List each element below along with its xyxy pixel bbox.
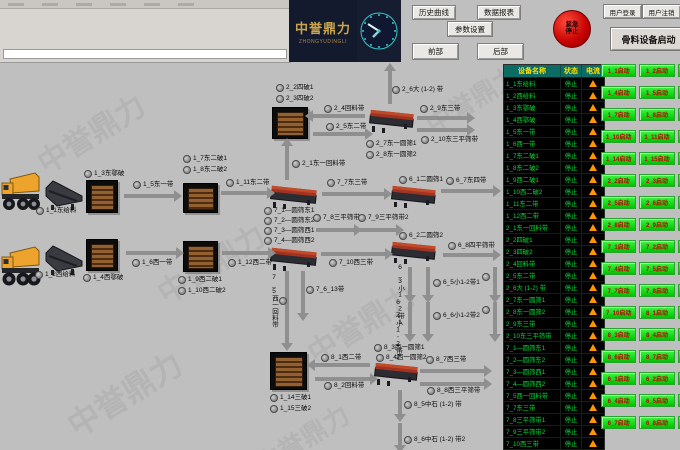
diagram-label: 2_8东一圆筛2 <box>366 151 416 159</box>
status-badge: 停止 <box>561 270 582 281</box>
diagram-label: 1_3东鄂破 <box>84 170 124 178</box>
diagram-label: 2_1东一回料带 <box>292 160 345 168</box>
start-button[interactable]: 1_8启动 <box>639 108 674 121</box>
status-badge: 停止 <box>561 342 582 353</box>
diagram-label: 8_4西一圆筛2 <box>376 354 426 362</box>
alarm-icon <box>589 200 597 207</box>
crusher-icon <box>183 183 218 213</box>
crusher-icon <box>272 107 308 139</box>
brand-watermark: 中誉鼎力 <box>27 82 152 183</box>
diagram-label: 1_14三破1 <box>270 394 311 402</box>
table-row: 1_6西一带 停止 <box>504 137 604 149</box>
status-badge: 停止 <box>561 126 582 137</box>
user-login-button[interactable]: 用户登录 <box>603 4 642 19</box>
device-name: 7_4—圆筛西2 <box>504 378 561 389</box>
flow-arrow-right <box>420 369 484 373</box>
alarm-icon <box>589 92 597 99</box>
start-button[interactable]: 7_1启动 <box>601 240 636 253</box>
start-button[interactable]: 8_1启动 <box>639 306 674 319</box>
flow-arrow-right <box>313 132 365 136</box>
start-button-row: 1_4启动 1_5启动 <box>601 86 680 99</box>
flow-arrow-right <box>420 382 484 386</box>
device-name: 2_5东二带 <box>504 270 561 281</box>
table-row: 1_12西二带 停止 <box>504 209 604 221</box>
flow-arrow-right <box>124 194 174 198</box>
status-badge: 停止 <box>561 426 582 437</box>
diagram-label: 2_4回料带 <box>324 105 364 113</box>
device-name: 2_2四破1 <box>504 234 561 245</box>
status-dot <box>482 306 490 314</box>
table-row: 1_11东二带 停止 <box>504 197 604 209</box>
status-badge: 停止 <box>561 306 582 317</box>
logo-latin: ZHONGYUDINGLI <box>299 39 347 45</box>
start-button[interactable]: 1_14启动 <box>601 152 636 165</box>
start-button[interactable]: 7_4启动 <box>601 262 636 275</box>
diagram-label: 7_9三平筛带2 <box>358 214 408 222</box>
start-button-row: 1_10启动 1_11启动 <box>601 130 680 143</box>
flow-arrow-down <box>301 271 305 313</box>
diagram-label: 7_10西三带 <box>329 259 373 267</box>
flow-arrow-right <box>316 228 354 232</box>
table-row: 1_10西二破2 停止 <box>504 185 604 197</box>
device-name: 2_3四破2 <box>504 246 561 257</box>
device-name: 1_6西一带 <box>504 138 561 149</box>
start-button-row: 1_7启动 1_8启动 <box>601 108 680 121</box>
status-badge: 停止 <box>561 102 582 113</box>
device-name: 1_10西二破2 <box>504 186 561 197</box>
device-name: 2_8东一圆筛2 <box>504 306 561 317</box>
device-name: 1_3东鄂破 <box>504 102 561 113</box>
flow-arrow-down <box>493 302 497 334</box>
vibrating-screen-icon <box>269 245 318 276</box>
diagram-label: 7_4—圆筛西2 <box>264 237 314 245</box>
start-button[interactable]: 2_9启动 <box>639 218 674 231</box>
front-section-button[interactable]: 前部 <box>412 43 459 60</box>
diagram-label: 2_6大 (1-2) 带 <box>392 86 443 94</box>
flow-arrow-down <box>408 302 412 334</box>
data-report-button[interactable]: 数据报表 <box>477 5 521 20</box>
diagram-label: 1_5东一带 <box>133 181 173 189</box>
diagram-label: 1_2西给料 <box>35 271 75 279</box>
device-name: 1_9西二破1 <box>504 174 561 185</box>
status-badge: 停止 <box>561 438 582 449</box>
device-name: 7_9三平筛带2 <box>504 426 561 437</box>
device-name: 2_9东三带 <box>504 318 561 329</box>
start-button[interactable]: 1_4启动 <box>601 86 636 99</box>
diagram-label: 1_7东二破1 <box>183 155 227 163</box>
status-badge: 停止 <box>561 174 582 185</box>
start-button[interactable]: 6_2启动 <box>639 372 674 385</box>
status-badge: 停止 <box>561 78 582 89</box>
start-button[interactable]: 2_3启动 <box>639 174 674 187</box>
device-name: 7_3—圆筛西1 <box>504 366 561 377</box>
alarm-icon <box>589 104 597 111</box>
device-name: 7_1—圆筛东1 <box>504 342 561 353</box>
diagram-label: 7_2—圆筛东2 <box>264 217 314 225</box>
table-row: 2_6大 (1-2) 带 停止 <box>504 281 604 293</box>
diagram-label: 1_11东二带 <box>226 179 269 187</box>
alarm-icon <box>589 140 597 147</box>
flow-arrow-right <box>126 251 176 255</box>
flow-arrow-right <box>441 189 493 193</box>
status-badge: 停止 <box>561 414 582 425</box>
device-name: 7_8三平筛带1 <box>504 414 561 425</box>
alarm-icon <box>589 404 597 411</box>
start-button[interactable]: 1_5启动 <box>639 86 674 99</box>
device-status-table: 设备名称 状态 电流 1_1东给料 停止 1_2西给料 停止 1_3东 <box>503 64 605 450</box>
table-row: 2_3四破2 停止 <box>504 245 604 257</box>
table-row: 1_9西二破1 停止 <box>504 173 604 185</box>
start-button-row: 1_14启动 1_15启动 <box>601 152 680 165</box>
device-name: 2_10东三平筛带 <box>504 330 561 341</box>
device-name: 1_2西给料 <box>504 90 561 101</box>
flow-arrow-down <box>408 267 412 295</box>
diagram-label: 6_8四平筛带 <box>448 242 495 250</box>
start-button-row: 6_7启动 6_8启动 <box>601 416 680 429</box>
start-button-row: 6_1启动 6_2启动 <box>601 372 680 385</box>
diagram-label: 8_6中石 (1-2) 带2 <box>404 436 465 444</box>
device-name: 7_2—圆筛东2 <box>504 354 561 365</box>
diagram-label: 6_2二圆筛2 <box>399 232 443 240</box>
alarm-icon <box>589 284 597 291</box>
flow-arrow-down <box>398 423 402 445</box>
table-row: 2_4回料带 停止 <box>504 257 604 269</box>
diagram-label: 8_3西一圆筛1 <box>374 344 424 352</box>
status-badge: 停止 <box>561 162 582 173</box>
stats-window <box>0 0 291 63</box>
start-button[interactable]: 7_8启动 <box>639 284 674 297</box>
scada-screen: 中誉鼎力 中誉鼎力 中誉鼎力 中誉鼎力 中誉鼎力 中誉鼎力 中誉鼎力 ZHONG… <box>0 0 680 450</box>
diagram-label: 7_6_13带 <box>306 286 344 294</box>
alarm-icon <box>589 332 597 339</box>
start-button-row: 7_1启动 7_2启动 <box>601 240 680 253</box>
flow-arrow-right <box>417 128 467 132</box>
diagram-label: 1_15三破2 <box>270 405 311 413</box>
brand-watermark: 中誉鼎力 <box>248 395 356 450</box>
diagram-label: 1_10西二破2 <box>178 287 226 295</box>
alarm-icon <box>589 320 597 327</box>
diagram-label: 8_5中石 (1-2) 带 <box>404 401 462 409</box>
diagram-label: 7_1—圆筛东1 <box>264 207 314 215</box>
start-panel-title: 骨料设备启动 <box>610 27 680 51</box>
start-button-row: 1_1启动 1_2启动 <box>601 64 680 77</box>
status-badge: 停止 <box>561 234 582 245</box>
table-row: 1_7东二破1 停止 <box>504 149 604 161</box>
vibrating-screen-icon <box>373 359 419 392</box>
flow-arrow-right <box>417 116 467 120</box>
flow-arrow-down <box>398 390 402 414</box>
table-row: 7_5西一回料带 停止 <box>504 389 604 401</box>
diagram-label: 2_9东三带 <box>420 105 460 113</box>
status-badge: 停止 <box>561 210 582 221</box>
start-button-row: 2_2启动 2_3启动 <box>601 174 680 187</box>
clock-panel <box>357 0 401 62</box>
start-button[interactable]: 8_3启动 <box>601 328 636 341</box>
table-row: 1_4西鄂破 停止 <box>504 113 604 125</box>
start-button[interactable]: 1_2启动 <box>639 64 674 77</box>
alarm-icon <box>589 440 597 447</box>
status-badge: 停止 <box>561 150 582 161</box>
alarm-icon <box>589 248 597 255</box>
status-badge: 停止 <box>561 90 582 101</box>
alarm-icon <box>589 212 597 219</box>
start-button[interactable]: 6_1启动 <box>601 372 636 385</box>
diagram-label: 2_5东二带 <box>326 123 366 131</box>
start-button-row: 7_4启动 7_5启动 <box>601 262 680 275</box>
crusher-icon <box>86 239 118 271</box>
table-row: 2_5东二带 停止 <box>504 269 604 281</box>
start-button[interactable]: 1_15启动 <box>639 152 674 165</box>
table-row: 7_2—圆筛东2 停止 <box>504 353 604 365</box>
diagram-label: 6_1二圆筛1 <box>399 176 443 184</box>
flow-arrow-down <box>426 302 430 334</box>
user-logout-button[interactable]: 用户注销 <box>642 4 680 19</box>
table-row: 7_9三平筛带2 停止 <box>504 425 604 437</box>
alarm-icon <box>589 416 597 423</box>
vibrating-screen-icon <box>390 183 437 213</box>
diagram-label: 1_1东给料 <box>36 207 76 215</box>
device-name: 2_1东一回料带 <box>504 222 561 233</box>
status-badge: 停止 <box>561 318 582 329</box>
status-badge: 停止 <box>561 258 582 269</box>
alarm-icon <box>589 308 597 315</box>
stats-window-input[interactable] <box>3 49 287 59</box>
table-row: 1_5东一带 停止 <box>504 125 604 137</box>
diagram-label: 8_7西三带 <box>426 356 466 364</box>
start-button[interactable]: 6_5启动 <box>639 394 674 407</box>
param-settings-button[interactable]: 参数设置 <box>447 21 493 37</box>
device-name: 2_6大 (1-2) 带 <box>504 282 561 293</box>
status-badge: 停止 <box>561 294 582 305</box>
alarm-icon <box>589 296 597 303</box>
start-button-row: 7_7启动 7_8启动 <box>601 284 680 297</box>
table-row: 2_8东一圆筛2 停止 <box>504 305 604 317</box>
status-badge: 停止 <box>561 138 582 149</box>
stats-window-header <box>0 0 290 9</box>
diagram-label: 1_8东二破2 <box>183 166 227 174</box>
device-name: 1_7东二破1 <box>504 150 561 161</box>
status-badge: 停止 <box>561 246 582 257</box>
start-button[interactable]: 2_6启动 <box>639 196 674 209</box>
table-row: 2_9东三带 停止 <box>504 317 604 329</box>
diagram-label: 6_5小1-2带1 <box>433 279 480 287</box>
diagram-label: 1_9西二破1 <box>178 276 222 284</box>
start-button[interactable]: 7_5启动 <box>639 262 674 275</box>
status-badge: 停止 <box>561 114 582 125</box>
alarm-icon <box>589 116 597 123</box>
table-row: 2_2四破1 停止 <box>504 233 604 245</box>
flow-arrow-right <box>321 252 385 256</box>
diagram-label: 2_3四破2 <box>276 95 313 103</box>
alarm-icon <box>589 344 597 351</box>
table-row: 7_1—圆筛东1 停止 <box>504 341 604 353</box>
status-badge: 停止 <box>561 222 582 233</box>
device-name: 1_11东二带 <box>504 198 561 209</box>
rear-section-button[interactable]: 后部 <box>477 43 524 60</box>
logo-text: 中誉鼎力 <box>295 18 351 37</box>
flow-arrow-right <box>322 192 384 196</box>
alarm-icon <box>589 260 597 267</box>
flow-arrow-right <box>221 191 267 195</box>
alarm-icon <box>589 380 597 387</box>
start-button-row: 2_5启动 2_6启动 <box>601 196 680 209</box>
status-dot <box>482 273 490 281</box>
crusher-icon <box>86 180 118 213</box>
emergency-stop-button[interactable]: 紧急 停止 <box>553 10 591 48</box>
table-row: 7_7东三带 停止 <box>504 401 604 413</box>
diagram-label: 2_7东一圆筛1 <box>366 140 416 148</box>
device-name: 1_5东一带 <box>504 126 561 137</box>
table-row: 1_8东二破2 停止 <box>504 161 604 173</box>
status-badge: 停止 <box>561 354 582 365</box>
start-button[interactable]: 1_7启动 <box>601 108 636 121</box>
device-name: 1_12西二带 <box>504 210 561 221</box>
table-row: 2_1东一回料带 停止 <box>504 221 604 233</box>
status-badge: 停止 <box>561 390 582 401</box>
start-button[interactable]: 6_7启动 <box>601 416 636 429</box>
start-button[interactable]: 8_6启动 <box>601 350 636 363</box>
device-name: 2_7东一圆筛1 <box>504 294 561 305</box>
diagram-label: 7_3—圆筛西1 <box>264 227 314 235</box>
dump-truck-icon <box>1 169 41 218</box>
crusher-icon <box>270 352 307 390</box>
flow-arrow-up <box>285 146 289 180</box>
start-button[interactable]: 2_5启动 <box>601 196 636 209</box>
start-button-row: 2_8启动 2_9启动 <box>601 218 680 231</box>
table-row: 1_2西给料 停止 <box>504 89 604 101</box>
start-button-row: 7_10启动 8_1启动 <box>601 306 680 319</box>
diagram-label: 7_8三平筛带1 <box>313 214 363 222</box>
device-name: 7_5西一回料带 <box>504 390 561 401</box>
alarm-icon <box>589 356 597 363</box>
start-button[interactable]: 1_11启动 <box>639 130 674 143</box>
alarm-icon <box>589 176 597 183</box>
flow-arrow-right <box>222 251 268 255</box>
diagram-label: 6_7东四带 <box>446 177 486 185</box>
flow-arrow-right <box>315 377 370 381</box>
diagram-label: 1_6西一带 <box>132 259 172 267</box>
diagram-label: 6_6小1-2带2 <box>433 312 480 320</box>
start-button[interactable]: 6_8启动 <box>639 416 674 429</box>
status-badge: 停止 <box>561 330 582 341</box>
device-name: 2_4回料带 <box>504 258 561 269</box>
vibrating-screen-icon <box>368 106 415 139</box>
device-table-header: 设备名称 状态 电流 <box>504 65 604 77</box>
start-buttons-grid: 1_1启动 1_2启动 1_4启动 1_5启动 1_7启动 1_8启动 1_10… <box>601 64 680 438</box>
diagram-label: 2_10东三平筛带 <box>421 136 478 144</box>
start-button[interactable]: 8_7启动 <box>639 350 674 363</box>
start-button-row: 8_6启动 8_7启动 <box>601 350 680 363</box>
start-button[interactable]: 1_1启动 <box>601 64 636 77</box>
history-curve-button[interactable]: 历史曲线 <box>412 5 456 20</box>
start-button[interactable]: 2_8启动 <box>601 218 636 231</box>
analog-clock-icon <box>359 11 399 51</box>
status-badge: 停止 <box>561 282 582 293</box>
diagram-label: 1_4西鄂破 <box>83 274 123 282</box>
diagram-label: 8_8西三平筛带 <box>427 387 480 395</box>
table-row: 2_10东三平筛带 停止 <box>504 329 604 341</box>
start-button[interactable]: 2_2启动 <box>601 174 636 187</box>
table-row: 1_3东鄂破 停止 <box>504 101 604 113</box>
brand-watermark: 中誉鼎力 <box>58 340 191 447</box>
status-badge: 停止 <box>561 402 582 413</box>
alarm-icon <box>589 392 597 399</box>
start-button[interactable]: 7_2启动 <box>639 240 674 253</box>
table-row: 7_8三平筛带1 停止 <box>504 413 604 425</box>
start-button-row: 8_3启动 8_4启动 <box>601 328 680 341</box>
flow-arrow-left <box>315 363 370 367</box>
device-name: 1_8东二破2 <box>504 162 561 173</box>
status-badge: 停止 <box>561 366 582 377</box>
alarm-icon <box>589 164 597 171</box>
alarm-icon <box>589 236 597 243</box>
alarm-icon <box>589 80 597 87</box>
table-row: 7_3—圆筛西1 停止 <box>504 365 604 377</box>
device-name: 7_10西三带 <box>504 438 561 449</box>
start-button[interactable]: 8_4启动 <box>639 328 674 341</box>
table-row: 7_10西三带 停止 <box>504 437 604 449</box>
alarm-icon <box>589 428 597 435</box>
device-name: 1_1东给料 <box>504 78 561 89</box>
status-badge: 停止 <box>561 378 582 389</box>
table-row: 2_7东一圆筛1 停止 <box>504 293 604 305</box>
alarm-icon <box>589 152 597 159</box>
start-button-row: 6_4启动 6_5启动 <box>601 394 680 407</box>
status-badge: 停止 <box>561 198 582 209</box>
diagram-label: 7_7东三带 <box>327 179 367 187</box>
diagram-label: 1_12西二带 <box>228 259 272 267</box>
alarm-icon <box>589 368 597 375</box>
flow-arrow-right <box>360 228 396 232</box>
diagram-label: 8_2回料带 <box>324 382 364 390</box>
start-button[interactable]: 1_10启动 <box>601 130 636 143</box>
status-badge: 停止 <box>561 186 582 197</box>
alarm-icon <box>589 272 597 279</box>
crusher-icon <box>183 241 218 272</box>
diagram-label: 8_1西二带 <box>321 354 361 362</box>
start-button[interactable]: 7_7启动 <box>601 284 636 297</box>
start-button[interactable]: 7_10启动 <box>601 306 636 319</box>
diagram-label-vertical: 7_5西一回料带 <box>270 274 287 328</box>
flow-arrow-down <box>493 267 497 295</box>
alarm-icon <box>589 128 597 135</box>
company-logo: 中誉鼎力 ZHONGYUDINGLI <box>289 0 357 62</box>
alarm-icon <box>589 224 597 231</box>
diagram-label: 2_2四破1 <box>276 84 313 92</box>
device-name: 1_4西鄂破 <box>504 114 561 125</box>
dump-truck-icon <box>1 243 41 294</box>
device-name: 7_7东三带 <box>504 402 561 413</box>
current-cell <box>582 438 604 449</box>
flow-arrow-left <box>313 114 365 118</box>
table-row: 1_1东给料 停止 <box>504 77 604 89</box>
start-button[interactable]: 6_4启动 <box>601 394 636 407</box>
alarm-icon <box>589 188 597 195</box>
flow-arrow-right <box>443 253 493 257</box>
flow-arrow-down <box>426 267 430 295</box>
table-row: 7_4—圆筛西2 停止 <box>504 377 604 389</box>
